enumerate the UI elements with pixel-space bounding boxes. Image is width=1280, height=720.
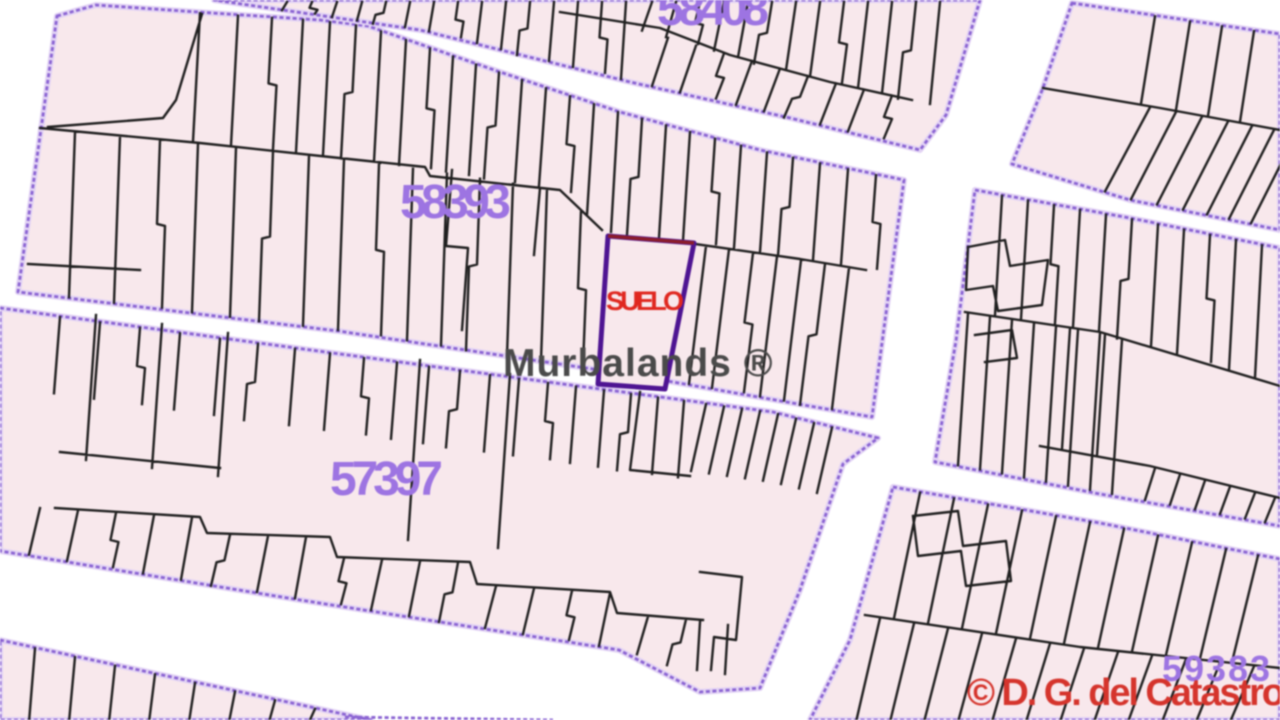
svg-text:58393: 58393 [400, 176, 511, 229]
svg-text:58408: 58408 [657, 0, 769, 36]
svg-text:© D. G. del Catastro: © D. G. del Catastro [967, 672, 1280, 714]
svg-text:Murbalands ®: Murbalands ® [503, 342, 773, 385]
svg-text:57397: 57397 [330, 453, 443, 506]
svg-text:SUELO: SUELO [606, 286, 684, 316]
